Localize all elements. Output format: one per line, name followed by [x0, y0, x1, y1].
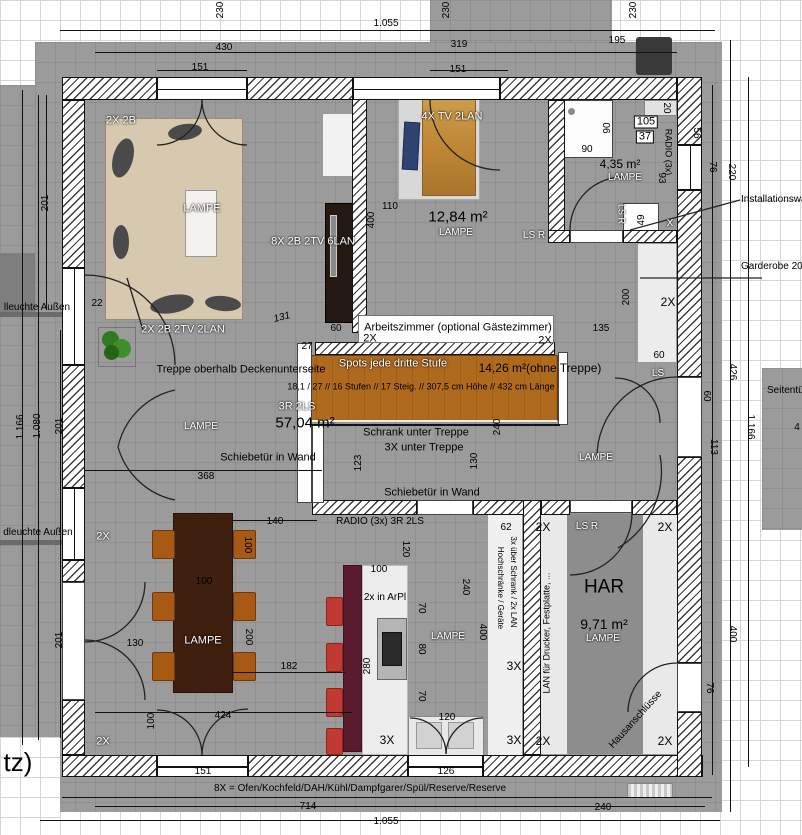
wall-segment [483, 755, 703, 777]
dim-label: 220 [726, 164, 736, 181]
dimension-line [95, 806, 705, 807]
staircase [300, 355, 558, 422]
dimension-line [60, 30, 715, 31]
sink-basin [416, 722, 442, 749]
dining-chair [152, 530, 175, 559]
door-opening [570, 500, 632, 513]
door-opening [677, 377, 702, 457]
wall-segment [62, 755, 157, 777]
dining-chair [233, 652, 256, 681]
dim-label: 230 [216, 2, 226, 19]
sink-basin [448, 722, 474, 749]
plan-ground-left [0, 85, 35, 737]
window [408, 755, 483, 777]
window [157, 77, 247, 100]
oven-door [382, 632, 402, 666]
har-shelf-left [541, 514, 567, 754]
coffee-table [185, 190, 217, 257]
dim-label: 230 [629, 2, 639, 19]
dimension-line [95, 52, 677, 53]
wall-segment [62, 560, 85, 582]
wall-segment [548, 100, 565, 243]
window [157, 755, 248, 777]
bar-stool [326, 728, 343, 755]
dimension-line [233, 520, 317, 521]
tv [330, 215, 337, 277]
text-label: Installationswand [741, 195, 802, 205]
door-opening [677, 663, 702, 712]
dimension-line [312, 424, 560, 426]
dining-chair [233, 530, 256, 559]
door-opening [570, 230, 623, 243]
wall-segment [315, 342, 555, 355]
dimension-line [60, 330, 61, 738]
dim-label: 1.055 [373, 817, 398, 827]
vanity [644, 100, 677, 116]
plan-ground-top [430, 0, 612, 42]
side-entry-area [762, 368, 802, 530]
wall-stub [558, 352, 568, 425]
wall-segment [312, 500, 417, 515]
sliding-door-pocket [417, 500, 473, 515]
dimension-line [157, 70, 247, 71]
wall-segment [62, 365, 85, 488]
wardrobe [637, 243, 677, 363]
wall-stub [297, 343, 312, 503]
bar-stool [326, 597, 343, 626]
dimension-line [712, 85, 713, 775]
wall-segment [248, 755, 408, 777]
dim-label: 400 [727, 626, 737, 643]
dimension-line [748, 77, 749, 767]
wall-segment [623, 230, 677, 243]
wall-segment [632, 500, 677, 515]
wall-segment [677, 457, 702, 663]
kitchen-island [343, 565, 362, 752]
vent-grate [627, 783, 673, 798]
wall-segment [62, 700, 85, 755]
bed-pillow [402, 122, 420, 171]
wall-segment [247, 77, 353, 100]
window [353, 77, 500, 100]
bed-mattress [422, 92, 476, 196]
door-opening [62, 582, 85, 700]
dimension-line [95, 712, 352, 713]
plant-leaves-icon [104, 345, 119, 360]
wall-segment [523, 500, 541, 755]
wall-segment [500, 77, 677, 100]
dim-label: 1.166 [745, 414, 755, 439]
chimney-block [636, 37, 672, 75]
dimension-line [730, 40, 731, 812]
room-label-band [358, 315, 554, 343]
wall-segment [548, 230, 570, 243]
wall-segment [62, 77, 157, 100]
shower-head-icon [568, 108, 575, 115]
text-label: Garderobe 200 [741, 262, 802, 272]
wall-light-bar [0, 312, 63, 317]
wall-segment [352, 98, 367, 333]
tall-cabinets [487, 510, 523, 758]
dimension-line [233, 672, 345, 673]
dining-chair [152, 652, 175, 681]
dimension-line [46, 95, 47, 310]
har-shelf-right [643, 514, 677, 754]
dim-label: 1.055 [373, 19, 398, 29]
dining-chair [233, 592, 256, 621]
wall-segment [677, 190, 702, 377]
dim-label: 426 [727, 364, 737, 381]
dining-chair [152, 592, 175, 621]
window [62, 268, 85, 365]
window [677, 145, 702, 190]
wall-segment [677, 77, 702, 145]
dimension-line [22, 90, 23, 745]
wall-segment [541, 500, 570, 515]
dimension-line [430, 70, 508, 71]
wall-segment [677, 712, 702, 777]
dimension-line [40, 820, 720, 821]
sideboard [322, 113, 354, 177]
bar-stool [326, 643, 343, 672]
dimension-line [85, 470, 322, 471]
wall-light-bar [0, 540, 63, 545]
dining-table [173, 513, 233, 693]
window [62, 488, 85, 560]
har-floor [567, 514, 643, 754]
sofa-pillow [113, 225, 129, 259]
floor-plan-canvas: 1.0554301513191511952302302302011.1661.0… [0, 0, 802, 835]
neighbor-block [0, 253, 35, 313]
dimension-line [38, 95, 39, 740]
wall-segment [62, 100, 85, 268]
wall-stub [312, 425, 324, 503]
dimension-line [62, 797, 712, 798]
